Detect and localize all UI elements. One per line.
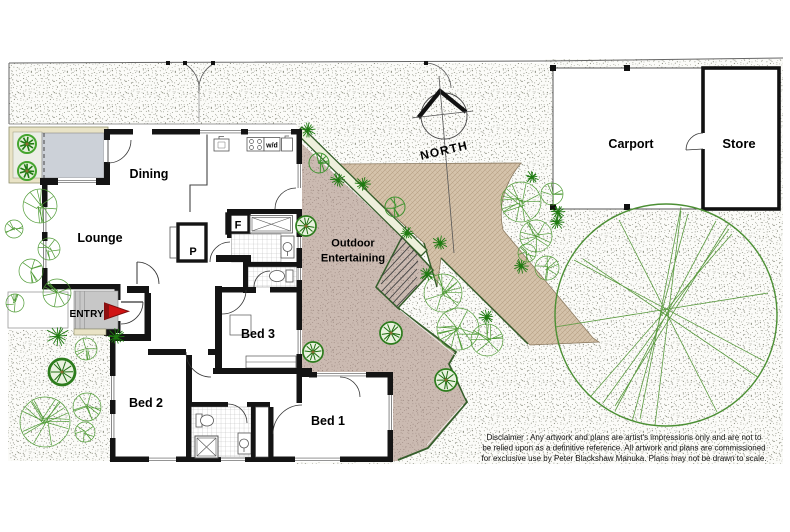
svg-text:be relied upon as a definitive: be relied upon as a definitive reference… [482, 444, 765, 453]
svg-text:Dining: Dining [130, 167, 169, 181]
svg-text:Entertaining: Entertaining [321, 253, 385, 265]
svg-text:ENTRY: ENTRY [70, 309, 105, 320]
svg-text:for exclusive use by Peter Bla: for exclusive use by Peter Blackshaw Man… [481, 454, 766, 463]
svg-text:Disclaimer : Any artwork and p: Disclaimer : Any artwork and plans are a… [487, 433, 763, 442]
svg-text:Carport: Carport [608, 137, 654, 151]
svg-text:w/d: w/d [265, 143, 278, 150]
svg-text:Store: Store [722, 136, 755, 151]
svg-text:Bed 3: Bed 3 [241, 327, 275, 341]
svg-text:Bed 1: Bed 1 [311, 414, 345, 428]
svg-text:F: F [235, 220, 242, 232]
svg-text:Bed 2: Bed 2 [129, 396, 163, 410]
svg-text:Lounge: Lounge [77, 231, 122, 245]
svg-text:P: P [189, 246, 196, 258]
svg-text:Outdoor: Outdoor [331, 238, 375, 250]
